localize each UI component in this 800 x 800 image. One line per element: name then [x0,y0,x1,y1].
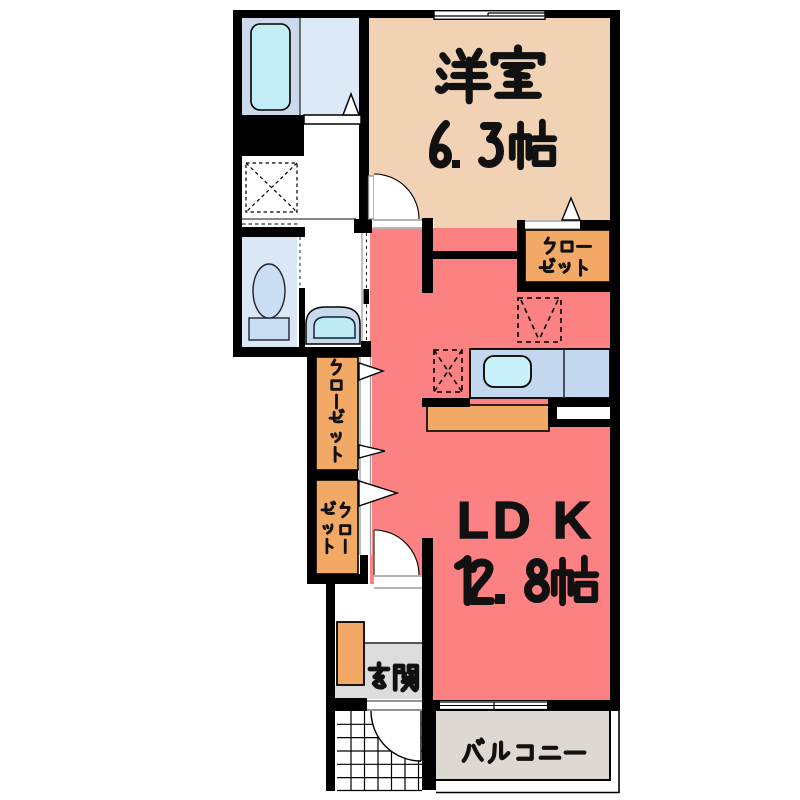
svg-text:D: D [493,492,531,550]
svg-text:L: L [457,492,489,550]
svg-text:K: K [553,492,591,550]
